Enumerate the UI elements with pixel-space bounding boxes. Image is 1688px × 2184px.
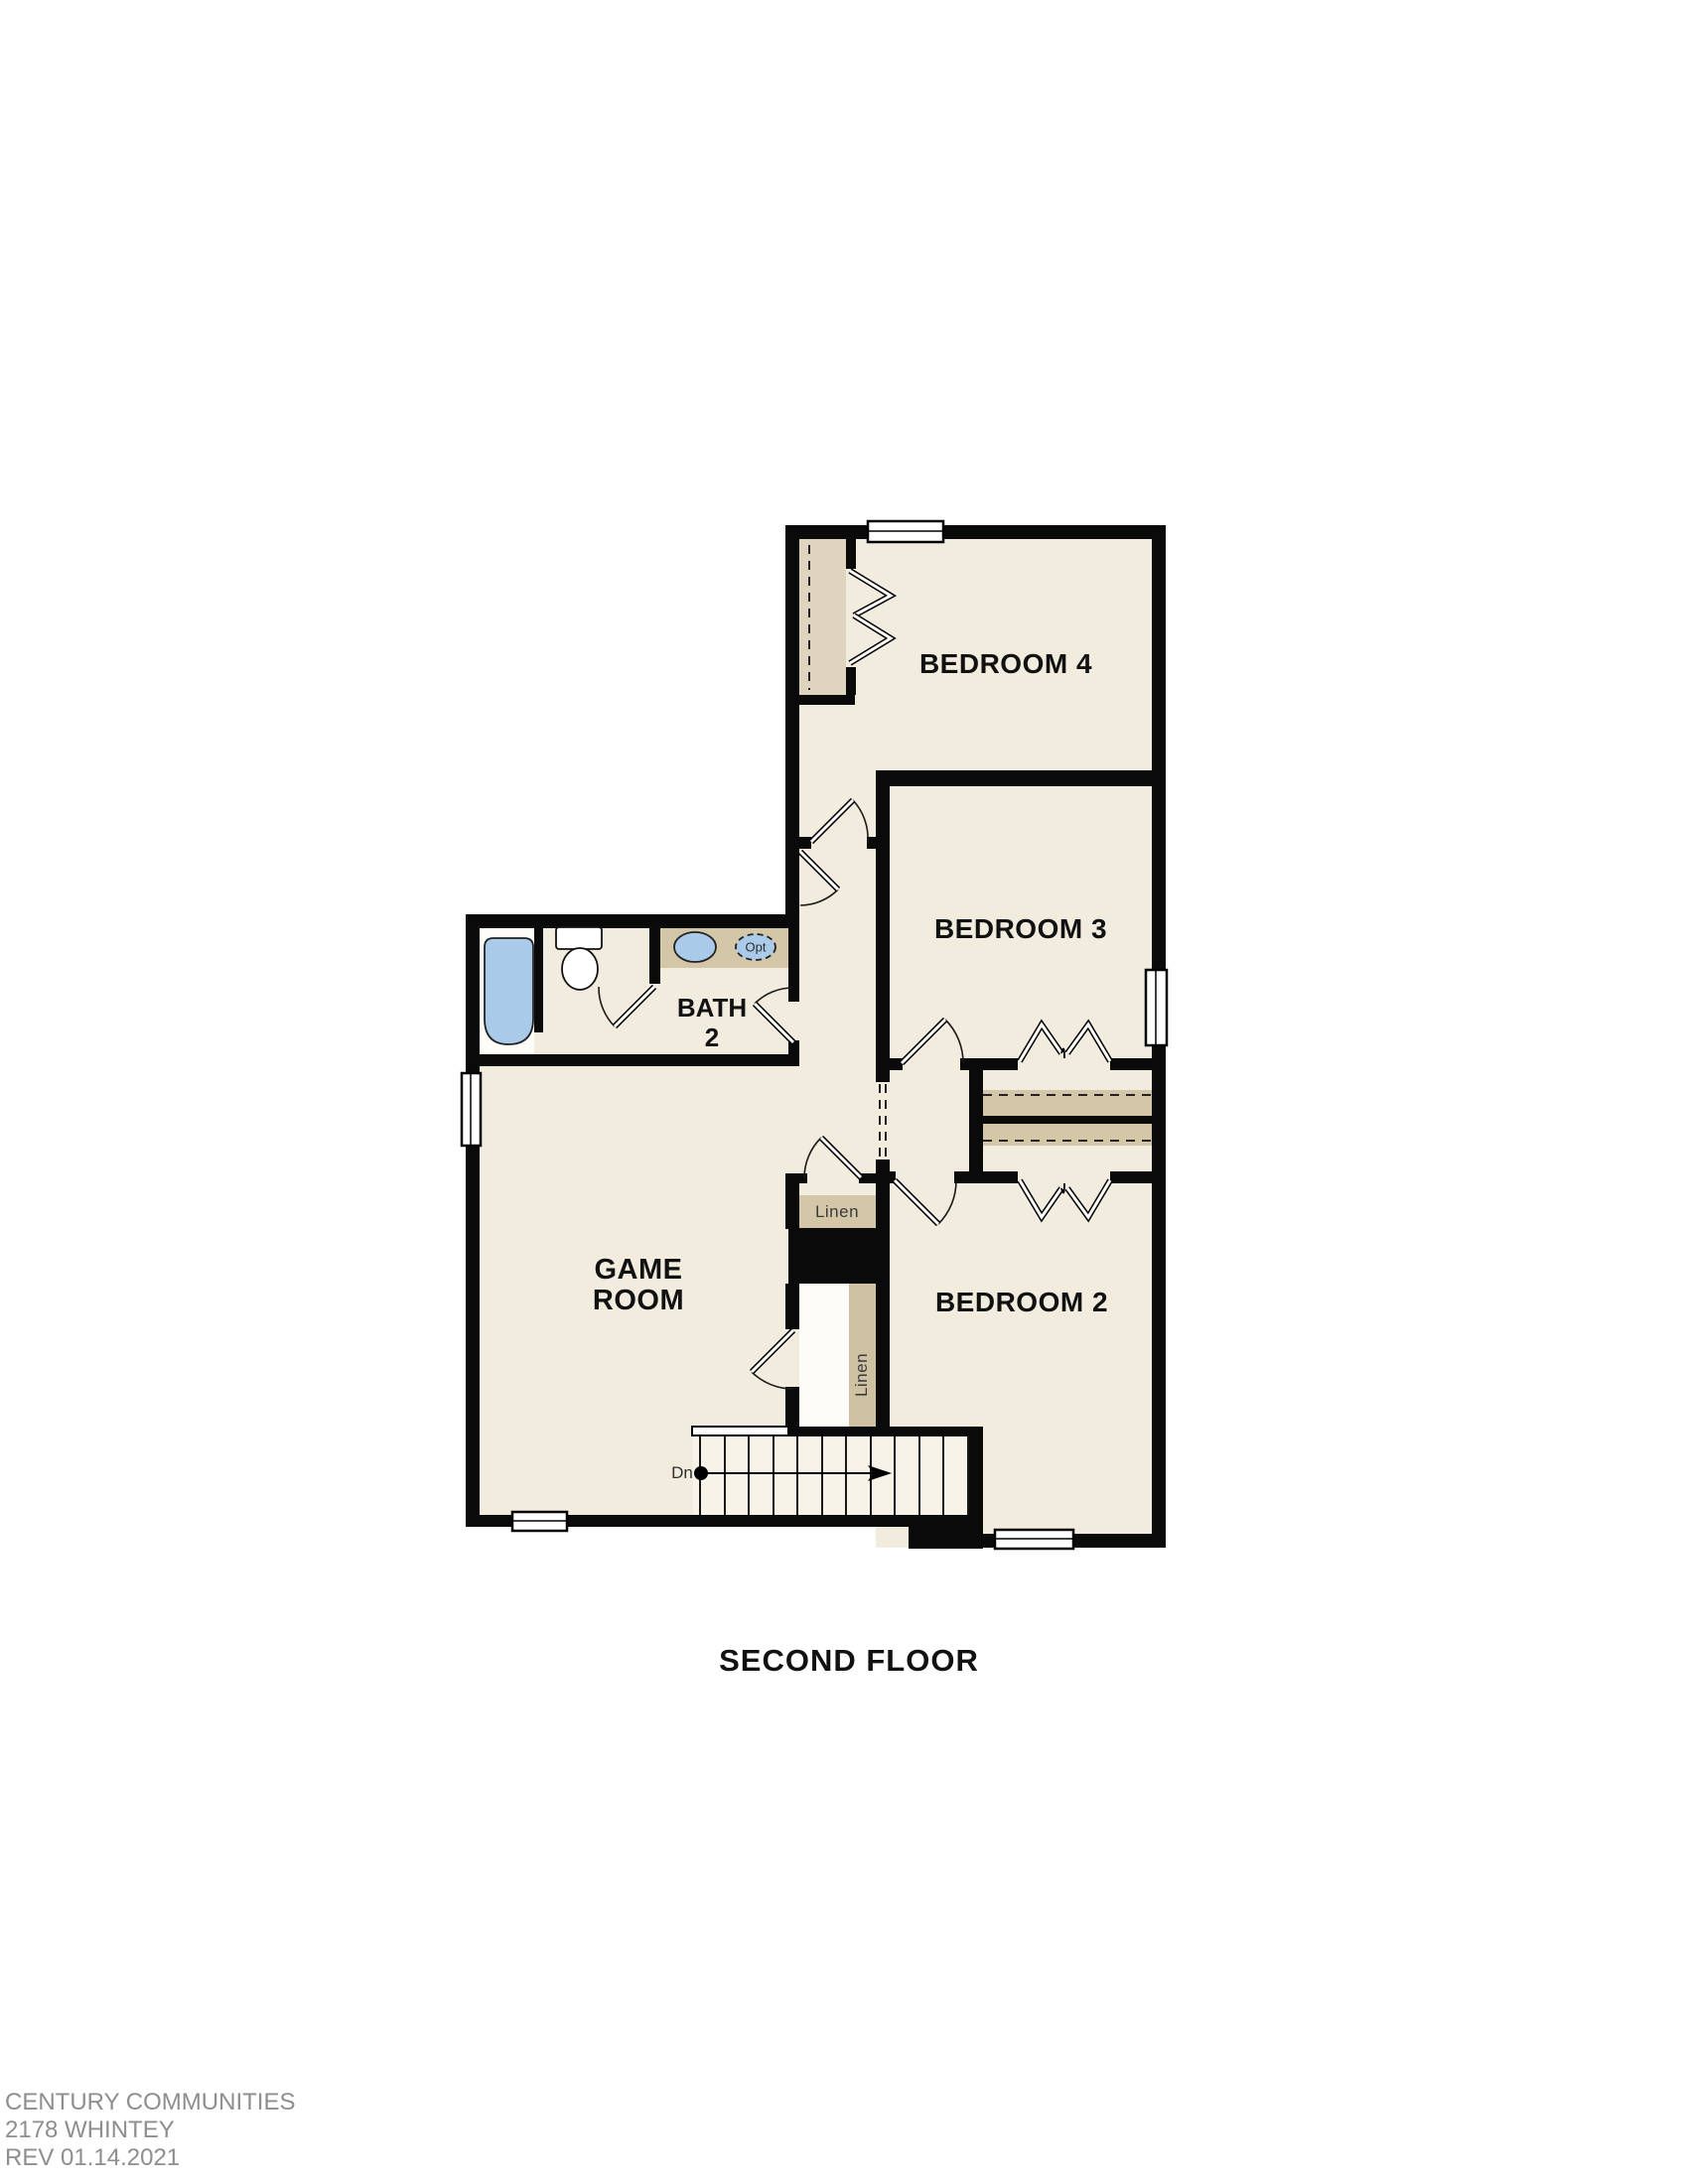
label-optional-sink: Opt [746, 940, 767, 955]
chase-block [788, 1228, 882, 1284]
stair-floor [693, 1436, 969, 1515]
bedroom-4-closet [799, 539, 846, 695]
label-game-room-line2: ROOM [593, 1286, 684, 1316]
stair-railing [692, 1427, 788, 1435]
label-bedroom-3: BEDROOM 3 [934, 913, 1107, 945]
linen-closet-lower-floor [799, 1284, 849, 1427]
label-linen-upper: Linen [815, 1202, 859, 1222]
label-linen-lower: Linen [852, 1353, 872, 1397]
label-bedroom-2: BEDROOM 2 [935, 1287, 1108, 1318]
footer-plan-name: 2178 WHINTEY [5, 2116, 295, 2144]
bathtub-icon [485, 938, 533, 1044]
label-bedroom-4: BEDROOM 4 [919, 648, 1092, 680]
floorplan-page: BEDROOM 4 BEDROOM 3 BEDROOM 2 GAME ROOM … [0, 0, 1688, 2184]
floor-plan-drawing [0, 0, 1688, 2184]
footer-revision: REV 01.14.2021 [5, 2144, 295, 2172]
label-stairs-down: Dn [671, 1463, 693, 1483]
label-game-room: GAME ROOM [593, 1255, 684, 1316]
label-bath-2: BATH 2 [677, 993, 747, 1052]
bedroom-2-closet-shelf [983, 1124, 1152, 1146]
label-bath-2-line1: BATH [677, 993, 747, 1023]
window-bedroom-4 [868, 521, 943, 542]
window-game-room-left [462, 1073, 481, 1146]
label-game-room-line1: GAME [593, 1255, 684, 1286]
page-title: SECOND FLOOR [719, 1643, 979, 1679]
window-game-room-bottom [512, 1512, 567, 1531]
bedroom-3-closet-shelf [983, 1090, 1152, 1116]
window-bedroom-2 [995, 1530, 1073, 1549]
plan-footer: CENTURY COMMUNITIES 2178 WHINTEY REV 01.… [5, 2089, 295, 2172]
footer-company: CENTURY COMMUNITIES [5, 2089, 295, 2116]
sink-icon [674, 932, 716, 962]
window-bedroom-3 [1146, 970, 1167, 1045]
label-bath-2-line2: 2 [677, 1023, 747, 1052]
